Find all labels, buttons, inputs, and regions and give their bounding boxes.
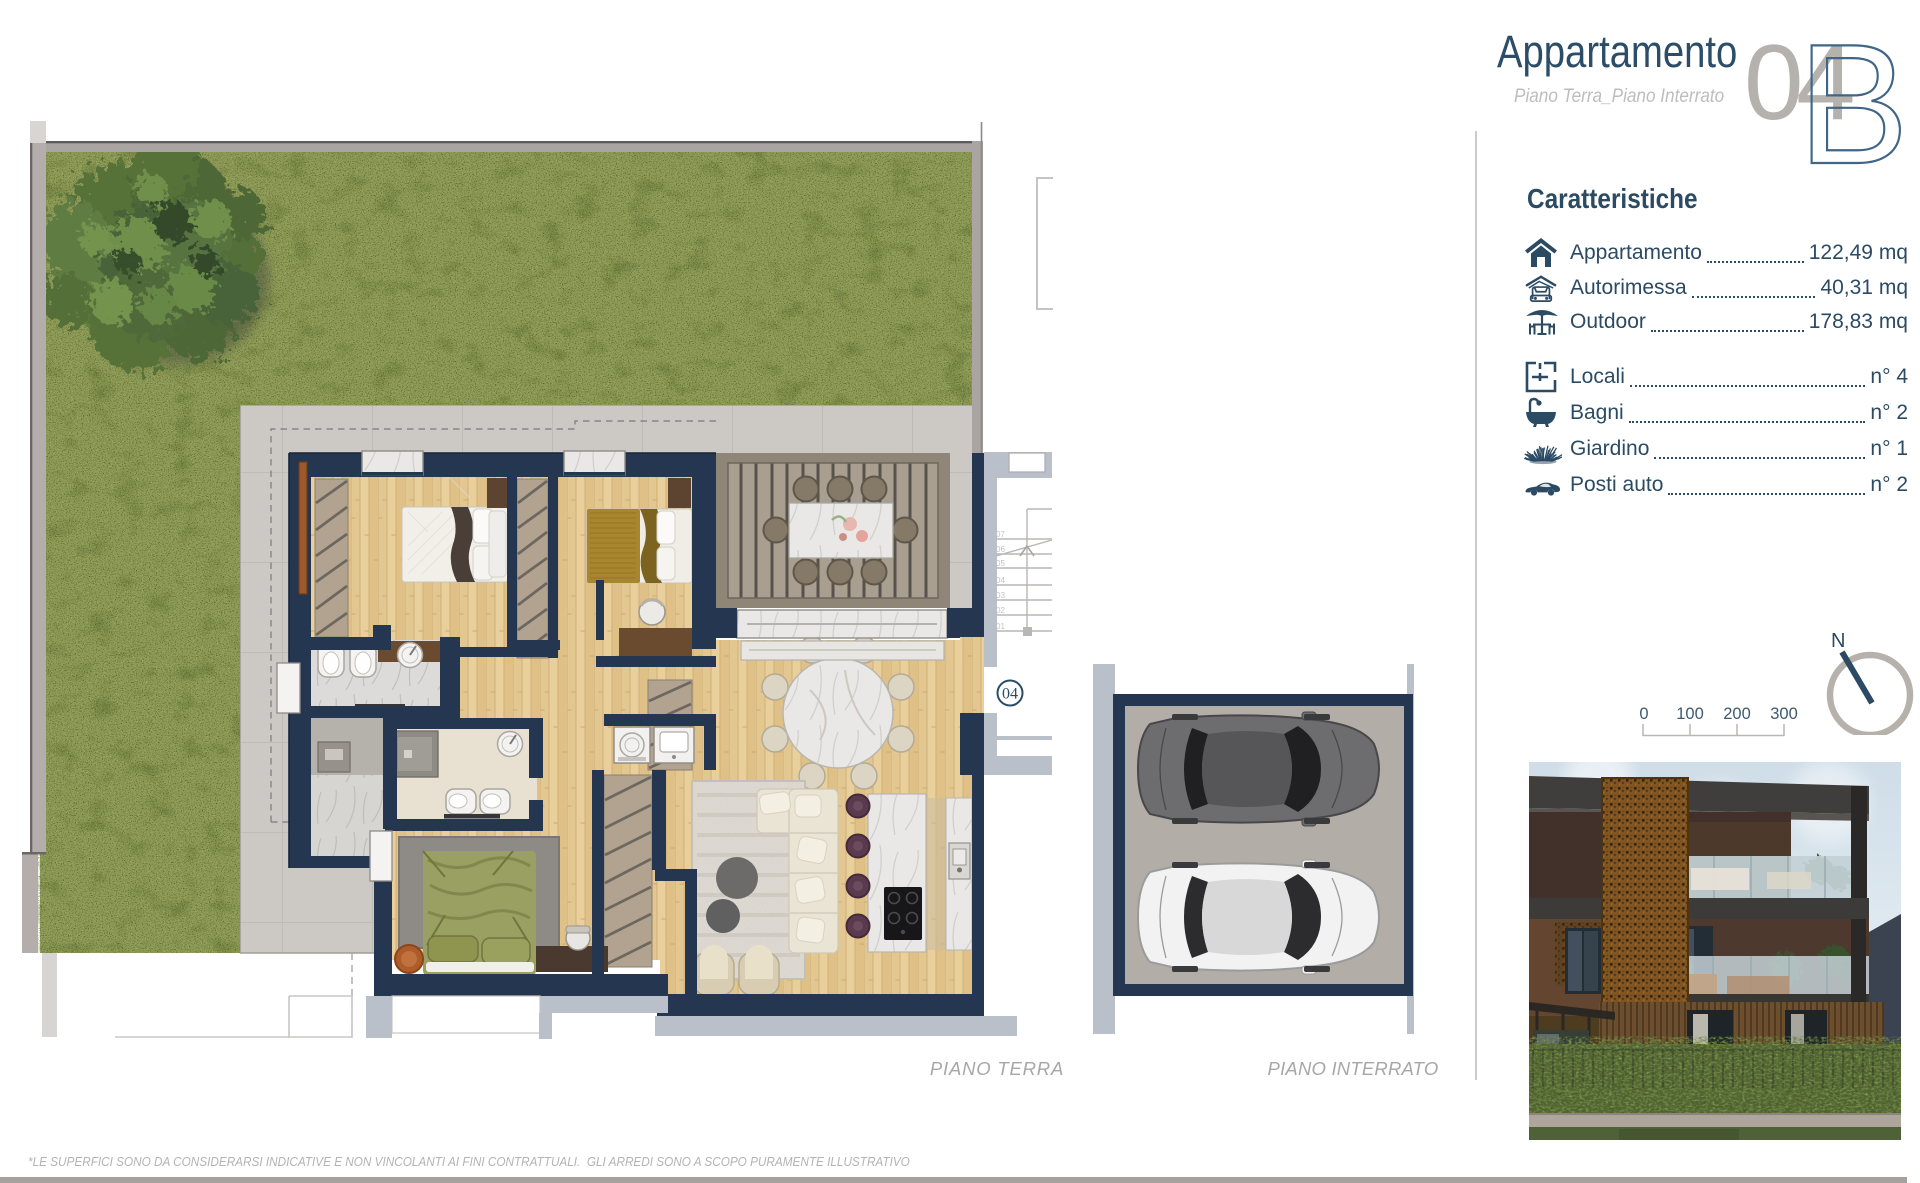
svg-text:0: 0 <box>1744 22 1804 142</box>
svg-text:300: 300 <box>1770 705 1798 723</box>
svg-text:02: 02 <box>996 606 1005 615</box>
svg-text:100: 100 <box>1676 705 1704 723</box>
svg-text:B: B <box>1798 9 1909 190</box>
svg-text:06: 06 <box>996 545 1005 554</box>
svg-text:PIANO INTERRATO: PIANO INTERRATO <box>1268 1058 1439 1079</box>
svg-text:07: 07 <box>996 530 1005 539</box>
svg-text:0: 0 <box>1639 705 1648 723</box>
svg-text:PIANO TERRA: PIANO TERRA <box>930 1058 1064 1079</box>
svg-text:04: 04 <box>1002 686 1018 703</box>
svg-text:200: 200 <box>1723 705 1751 723</box>
svg-text:03: 03 <box>996 591 1005 600</box>
svg-text:N: N <box>1831 630 1845 652</box>
svg-text:05: 05 <box>996 559 1005 568</box>
svg-text:01: 01 <box>996 622 1005 631</box>
svg-text:04: 04 <box>996 576 1005 585</box>
